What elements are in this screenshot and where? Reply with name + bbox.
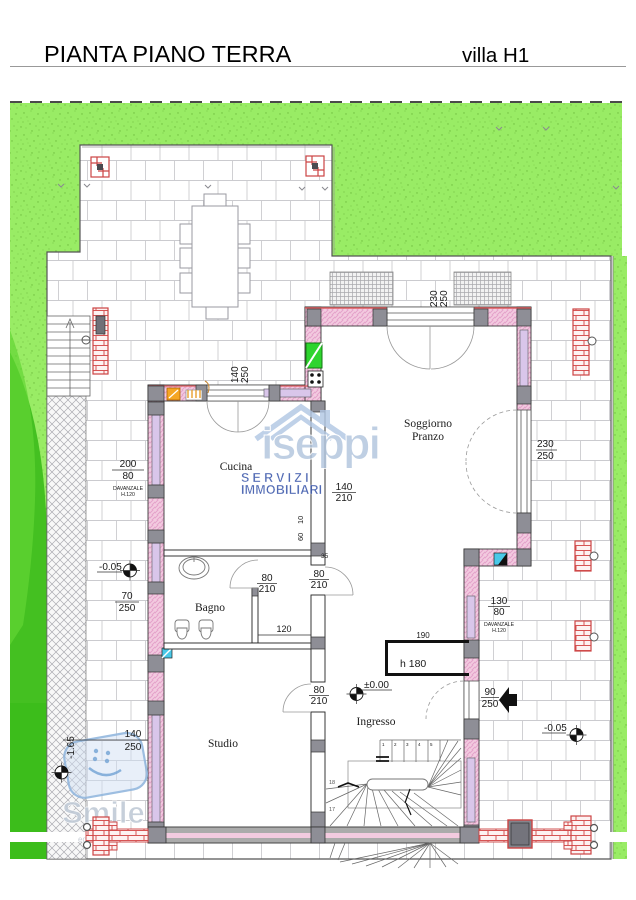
svg-text:80: 80 <box>122 471 134 482</box>
svg-text:250: 250 <box>125 742 142 753</box>
svg-text:Studio: Studio <box>208 738 238 750</box>
svg-text:80: 80 <box>313 569 325 580</box>
svg-text:90: 90 <box>484 687 496 698</box>
svg-text:Soggiorno: Soggiorno <box>404 418 452 430</box>
svg-text:130: 130 <box>491 596 508 607</box>
svg-text:210: 210 <box>259 584 276 595</box>
svg-text:villa H1: villa H1 <box>462 44 529 67</box>
svg-text:35: 35 <box>321 553 329 560</box>
svg-text:190: 190 <box>416 631 430 640</box>
svg-text:Ingresso: Ingresso <box>357 716 396 728</box>
svg-text:PIANTA PIANO TERRA: PIANTA PIANO TERRA <box>44 41 292 67</box>
svg-text:250: 250 <box>240 366 251 383</box>
svg-text:Bagno: Bagno <box>195 602 225 614</box>
svg-text:Pranzo: Pranzo <box>412 431 444 443</box>
svg-text:h 180: h 180 <box>400 658 426 670</box>
svg-text:10: 10 <box>296 516 305 524</box>
svg-text:Cucina: Cucina <box>220 461 253 473</box>
svg-text:±0.00: ±0.00 <box>364 680 389 691</box>
svg-text:IMMOBILIARI: IMMOBILIARI <box>241 483 322 497</box>
svg-text:250: 250 <box>537 451 554 462</box>
svg-text:250: 250 <box>439 290 450 307</box>
svg-text:-0.05: -0.05 <box>544 723 567 734</box>
svg-text:230: 230 <box>537 439 554 450</box>
svg-text:200: 200 <box>120 459 137 470</box>
svg-text:18: 18 <box>329 780 335 786</box>
svg-text:120: 120 <box>276 624 291 634</box>
svg-text:80: 80 <box>313 685 325 696</box>
svg-text:-1.65: -1.65 <box>66 736 77 759</box>
svg-text:80: 80 <box>493 607 505 618</box>
svg-text:210: 210 <box>336 493 353 504</box>
svg-text:H.120: H.120 <box>121 492 135 498</box>
svg-text:70: 70 <box>121 591 133 602</box>
svg-text:17: 17 <box>329 807 335 813</box>
svg-text:140: 140 <box>125 729 142 740</box>
svg-text:80: 80 <box>261 573 273 584</box>
svg-text:140: 140 <box>336 482 353 493</box>
svg-text:210: 210 <box>311 696 328 707</box>
svg-text:250: 250 <box>119 603 136 614</box>
svg-text:-0.05: -0.05 <box>99 562 122 573</box>
svg-text:iseppi: iseppi <box>261 418 379 469</box>
svg-text:60: 60 <box>296 533 305 541</box>
svg-text:H.120: H.120 <box>492 628 506 634</box>
svg-text:250: 250 <box>482 699 499 710</box>
svg-text:210: 210 <box>311 580 328 591</box>
